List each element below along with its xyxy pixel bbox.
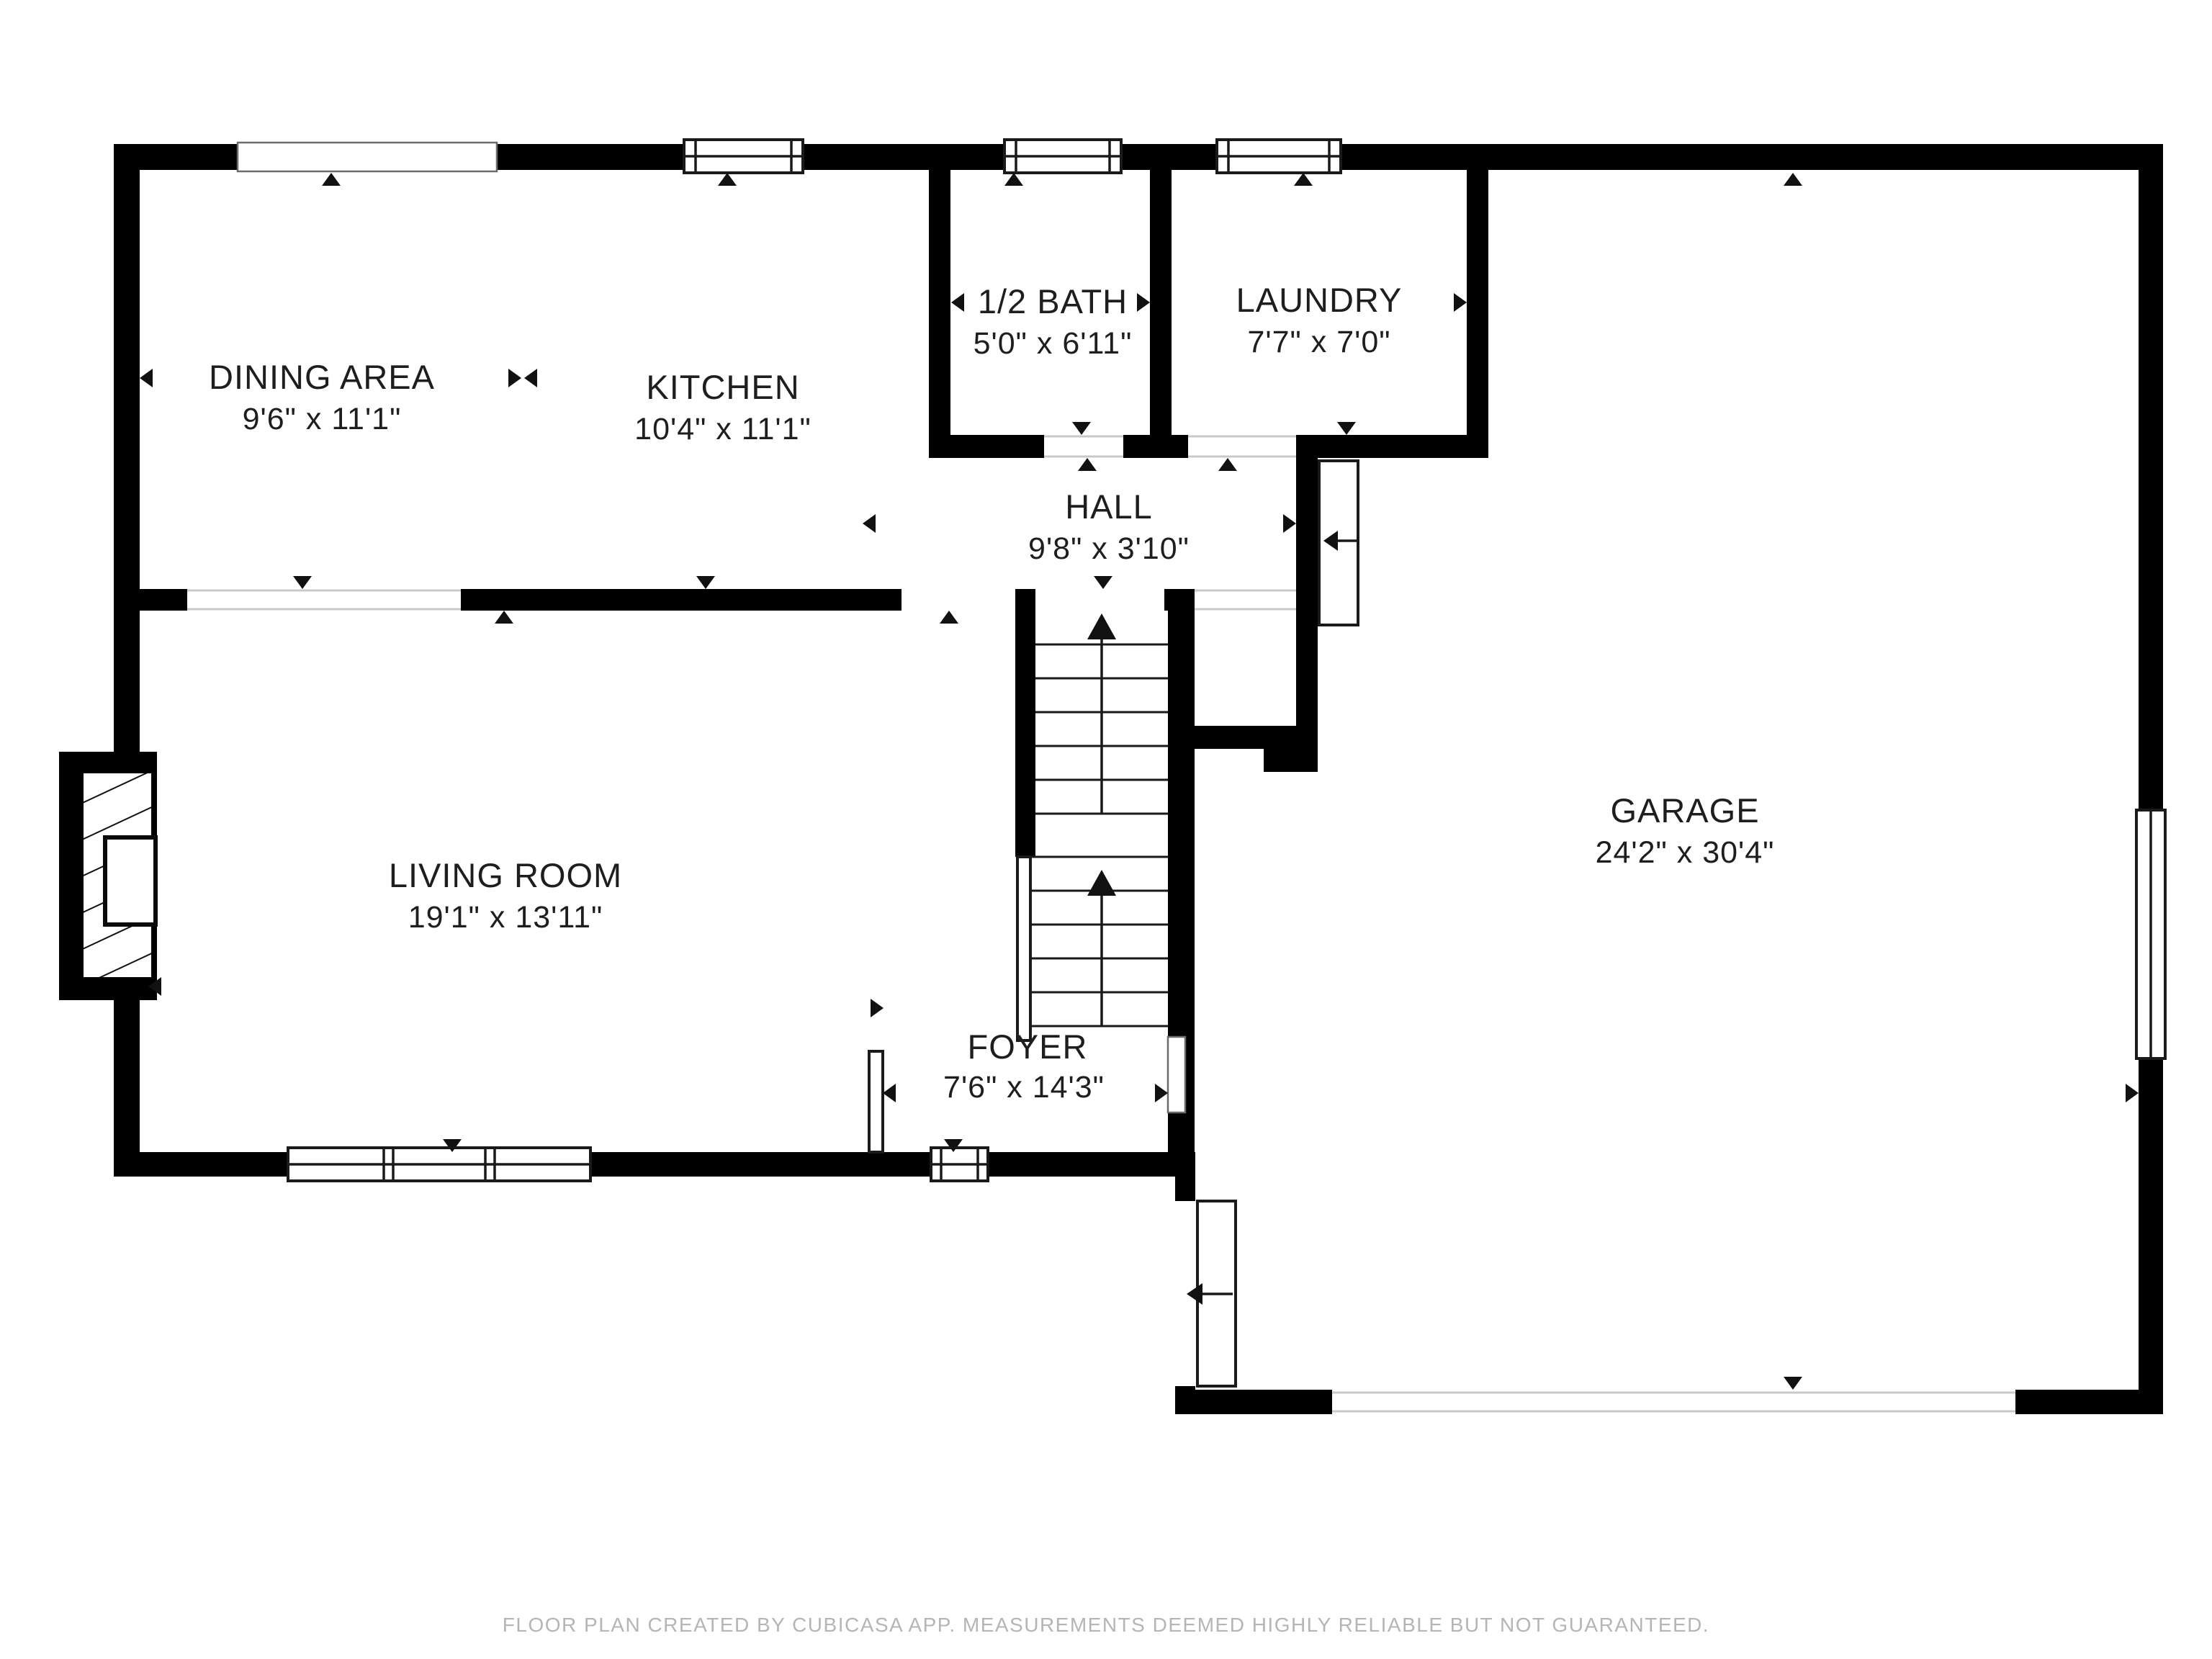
railings [869, 857, 1030, 1152]
room-name-bath: 1/2 BATH [978, 282, 1128, 320]
room-name-foyer: FOYER [968, 1028, 1088, 1066]
marker-left-bath-wall [951, 293, 964, 312]
opening-laundry-door [1188, 436, 1296, 457]
window-garage-right [2136, 810, 2165, 1058]
floor-plan-page: DINING AREA 9'6" x 11'1" KITCHEN 10'4" x… [0, 0, 2212, 1659]
room-name-living: LIVING ROOM [389, 856, 622, 894]
firebox [105, 837, 156, 925]
room-name-kitchen: KITCHEN [646, 368, 799, 406]
opening-dining-living [187, 590, 461, 609]
marker-up-hall-laundry-door [1218, 458, 1237, 471]
door-foyer-garage [1187, 1201, 1236, 1386]
room-label-bath: 1/2 BATH 5'0" x 6'11" [974, 282, 1133, 361]
marker-down-garage-door [1784, 1377, 1802, 1390]
fireplace-outer-wall [62, 755, 84, 997]
room-dims-laundry: 7'7" x 7'0" [1248, 325, 1391, 359]
room-label-laundry: LAUNDRY 7'7" x 7'0" [1236, 281, 1403, 359]
wall-bath-bottom-left [929, 435, 1044, 458]
window-laundry [1217, 140, 1341, 173]
room-label-hall: HALL 9'8" x 3'10" [1028, 487, 1190, 566]
windows [238, 140, 2165, 1181]
marker-down-bath-door [1072, 422, 1091, 435]
stair-arrow-lower [1087, 870, 1116, 1026]
wall-kitchen-living [461, 589, 902, 611]
room-name-laundry: LAUNDRY [1236, 281, 1403, 319]
marker-down-kitchen-bottom [696, 576, 715, 589]
marker-down-laundry-door [1337, 422, 1356, 435]
room-label-foyer: FOYER 7'6" x 14'3" [943, 1028, 1105, 1105]
marker-up-garage-top [1784, 173, 1802, 186]
marker-pair-kitchen-left [524, 369, 537, 387]
room-dims-foyer: 7'6" x 14'3" [943, 1070, 1105, 1105]
wall-left-lower [114, 997, 140, 1177]
wall-front-left [114, 1152, 291, 1177]
marker-right-foyer-boundary [871, 999, 884, 1017]
marker-up-laundry-window [1294, 173, 1313, 186]
opening-garage-door [1332, 1393, 2015, 1411]
floor-plan-canvas: DINING AREA 9'6" x 11'1" KITCHEN 10'4" x… [0, 0, 2212, 1659]
railing-foyer [869, 1051, 883, 1152]
marker-right-garage-wall [2126, 1084, 2139, 1102]
marker-up-foyer-top [940, 611, 958, 624]
room-name-hall: HALL [1065, 487, 1153, 526]
front-door [931, 1148, 988, 1181]
marker-down-hall-stairs [1094, 576, 1112, 589]
wall-foyer-garage-lower [1175, 1386, 1195, 1414]
wall-front-center [588, 1152, 931, 1177]
staircase [1031, 613, 1168, 1026]
wall-kitchen-bath [929, 168, 950, 435]
footer-disclaimer: FLOOR PLAN CREATED BY CUBICASA APP. MEAS… [503, 1614, 1709, 1636]
wall-garage-right [2139, 144, 2163, 1414]
wall-front-foyer [988, 1152, 1175, 1177]
wall-closet-bottom [1192, 726, 1296, 749]
marker-right-bath-laundry [1137, 293, 1150, 312]
marker-left-hall-kitchen [863, 514, 876, 533]
marker-up-bath-window [1004, 173, 1023, 186]
room-label-kitchen: KITCHEN 10'4" x 11'1" [634, 368, 811, 446]
marker-right-foyer-stairwall [1155, 1084, 1168, 1102]
door-hall-garage [1319, 461, 1358, 625]
marker-down-dining-bottom [293, 576, 312, 589]
marker-up-kitchen-window [718, 173, 737, 186]
wall-foyer-garage-upper [1175, 1152, 1195, 1201]
window-kitchen [684, 140, 803, 173]
marker-left-dining-wall [140, 369, 153, 387]
wall-garage-bottom-left [1175, 1390, 1332, 1414]
wall-dining-living-stub [114, 589, 187, 611]
marker-pair-dining-right [508, 369, 521, 387]
room-dims-kitchen: 10'4" x 11'1" [634, 412, 811, 446]
railing-stairs [1017, 857, 1030, 1040]
wall-laundry-garage [1467, 168, 1488, 458]
window-bath [1004, 140, 1121, 173]
room-dims-living: 19'1" x 13'11" [408, 900, 603, 935]
room-label-garage: GARAGE 24'2" x 30'4" [1596, 791, 1775, 870]
opening-bath-door [1044, 436, 1123, 457]
marker-right-hall-wall [1283, 514, 1296, 533]
room-dims-garage: 24'2" x 30'4" [1596, 835, 1775, 870]
wall-laundry-bottom-right [1296, 435, 1488, 458]
marker-right-laundry-wall [1454, 293, 1467, 312]
window-dining-wide [238, 143, 497, 171]
fireplace-bottom-wall [62, 977, 154, 997]
marker-up-living-top [495, 611, 513, 624]
fireplace-top-wall [62, 755, 154, 773]
window-living-triple [288, 1148, 590, 1181]
room-label-living: LIVING ROOM 19'1" x 13'11" [389, 856, 622, 935]
fireplace-bay [62, 755, 156, 997]
room-name-dining: DINING AREA [209, 358, 435, 396]
wall-garage-bottom-right [2015, 1390, 2163, 1414]
opening-closet [1195, 590, 1296, 609]
wall-left-upper [114, 144, 140, 755]
room-labels: DINING AREA 9'6" x 11'1" KITCHEN 10'4" x… [209, 281, 1774, 1105]
wall-laundry-bottom-left [1150, 435, 1188, 458]
marker-up-hall-bath-door [1078, 458, 1097, 471]
room-dims-dining: 9'6" x 11'1" [243, 402, 402, 436]
room-label-dining: DINING AREA 9'6" x 11'1" [209, 358, 435, 436]
room-dims-bath: 5'0" x 6'11" [974, 326, 1133, 361]
wall-hall-garage [1296, 458, 1318, 749]
wall-bath-laundry [1150, 168, 1172, 435]
room-dims-hall: 9'8" x 3'10" [1028, 531, 1190, 566]
marker-left-foyer-railing [883, 1084, 896, 1102]
room-name-garage: GARAGE [1610, 791, 1759, 829]
window-stairwall-break [1168, 1037, 1185, 1112]
marker-up-dining-window [322, 173, 341, 186]
wall-hall-garage-cap [1264, 749, 1318, 772]
measurement-markers [140, 173, 2139, 1390]
wall-stair-left [1015, 589, 1035, 857]
